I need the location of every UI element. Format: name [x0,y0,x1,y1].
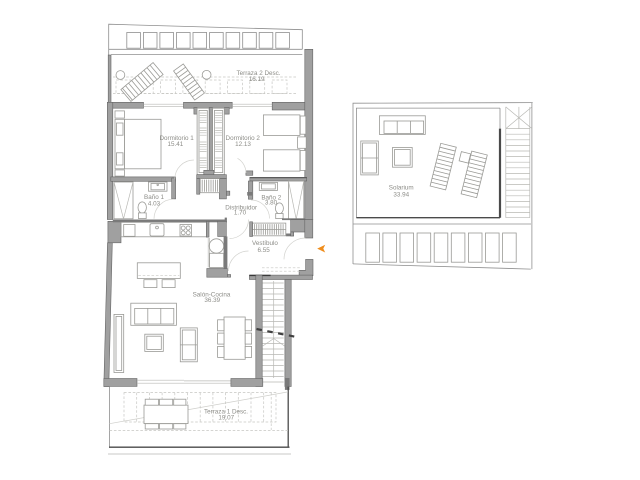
svg-text:16.19: 16.19 [249,76,265,83]
svg-text:Solarium: Solarium [389,184,414,191]
svg-text:15.41: 15.41 [168,141,184,148]
svg-text:Vestíbulo: Vestíbulo [252,240,278,247]
svg-text:1.70: 1.70 [234,210,247,217]
svg-text:6.55: 6.55 [257,247,270,254]
svg-text:33.94: 33.94 [393,192,409,199]
svg-text:36.39: 36.39 [204,297,220,304]
svg-text:19.07: 19.07 [218,414,234,421]
svg-text:12.13: 12.13 [235,141,251,148]
svg-text:3.80: 3.80 [265,199,278,206]
svg-text:4.03: 4.03 [148,201,161,208]
